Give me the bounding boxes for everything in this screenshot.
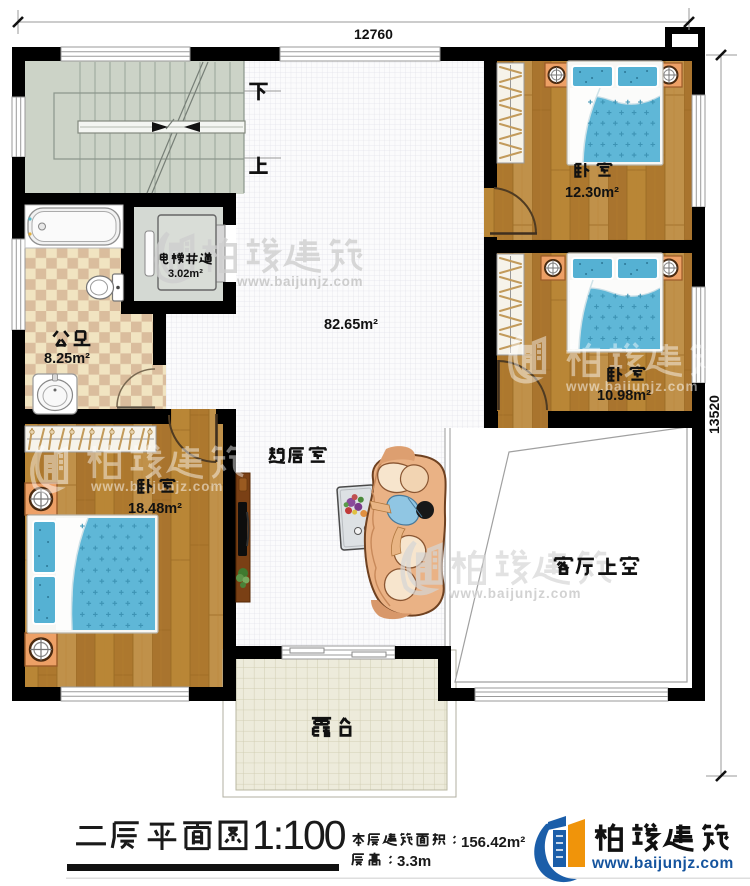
svg-text:12.30m²: 12.30m² xyxy=(565,185,619,201)
svg-text:1:100: 1:100 xyxy=(252,812,346,858)
svg-text:www.baijunjz.com: www.baijunjz.com xyxy=(236,274,363,289)
svg-text:8.25m²: 8.25m² xyxy=(44,351,90,367)
svg-text:3.3m: 3.3m xyxy=(397,853,431,870)
svg-text:18.48m²: 18.48m² xyxy=(128,501,182,517)
svg-text:13520: 13520 xyxy=(706,395,722,434)
svg-text:www.baijunjz.com: www.baijunjz.com xyxy=(591,855,734,872)
svg-text:3.02m²: 3.02m² xyxy=(168,268,203,280)
svg-text:12760: 12760 xyxy=(354,26,393,42)
svg-text:10.98m²: 10.98m² xyxy=(597,388,651,404)
svg-text:82.65m²: 82.65m² xyxy=(324,317,378,333)
svg-text:www.baijunjz.com: www.baijunjz.com xyxy=(448,586,582,601)
svg-text:www.baijunjz.com: www.baijunjz.com xyxy=(90,479,224,494)
svg-text:156.42m²: 156.42m² xyxy=(461,834,525,851)
